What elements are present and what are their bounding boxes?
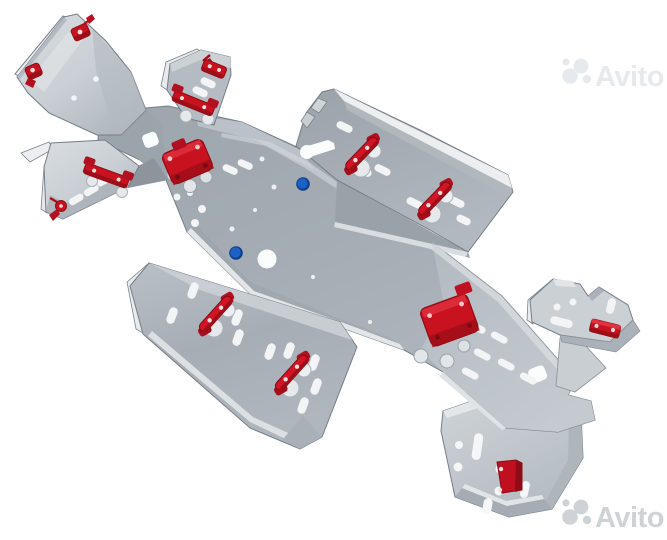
svg-text:Avito: Avito [595,502,664,534]
svg-text:Avito: Avito [595,61,664,93]
